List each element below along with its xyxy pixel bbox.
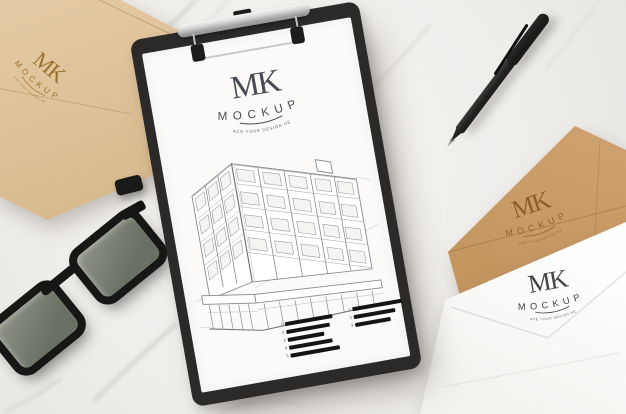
redacted-line-bar	[355, 317, 391, 326]
clipboard-paper: 1 2 3 4 5 1 2 3	[142, 17, 411, 393]
desk-scene-photo: { "brand": { "initials": "MK", "name": "…	[0, 0, 626, 414]
clip-grip-left	[190, 43, 206, 62]
redacted-line-marker: 4	[281, 346, 288, 351]
redacted-line-marker: 2	[346, 316, 353, 321]
redacted-line-marker: 1	[344, 308, 351, 313]
clip-grip-right	[290, 26, 306, 45]
redacted-list-left-column: 1 2 3 4 5	[277, 314, 341, 363]
redacted-line-marker: 1	[277, 323, 284, 328]
redacted-line-marker: 5	[282, 354, 289, 359]
redacted-line-marker: 3	[280, 338, 287, 343]
redacted-line-marker: 2	[278, 331, 285, 336]
redacted-line-marker: 3	[347, 323, 354, 328]
